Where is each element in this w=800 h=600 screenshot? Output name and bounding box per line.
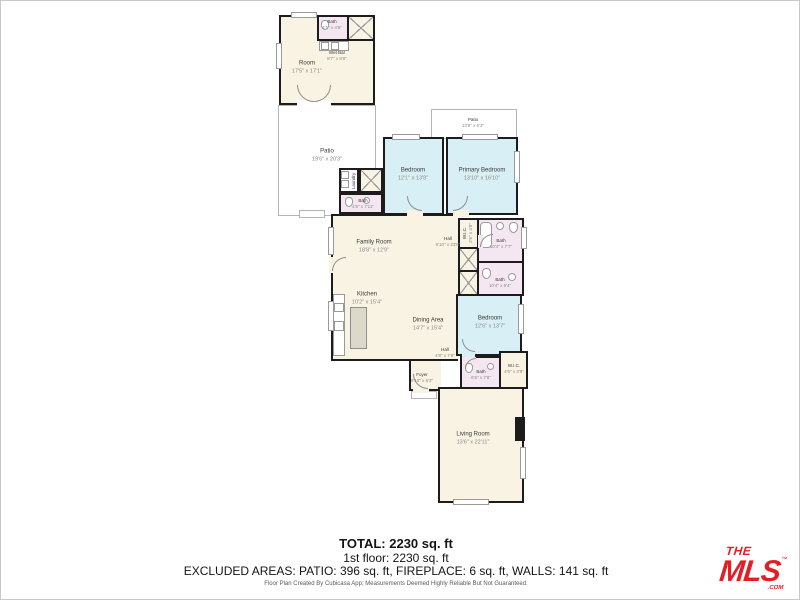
label-living-room: Living Room13'6" x 22'11" — [456, 432, 489, 447]
label-kitchen: Kitchen10'2" x 15'4" — [352, 292, 382, 307]
label-bath-lower: Bath10'4" x 6'4" — [489, 277, 511, 289]
living-bottom-window — [453, 499, 489, 505]
kitchen-island — [350, 307, 367, 349]
bedroom-right-window — [518, 304, 524, 334]
label-family-room: Family Room18'8" x 12'9" — [356, 240, 391, 255]
label-hall-small: Hall4'8" x 7'8" — [435, 347, 455, 359]
label-primary-bedroom: Primary Bedroom13'10" x 16'10" — [459, 168, 506, 183]
washer — [341, 171, 349, 179]
living-right-window — [520, 447, 526, 479]
label-laundry: Laundry — [351, 173, 357, 189]
kitchen-sink — [334, 303, 344, 312]
bedroom-left-window — [392, 134, 420, 140]
label-adu-bath: Bath4'1" x 4'6" — [322, 19, 342, 31]
hall-closet-x2 — [458, 247, 479, 272]
label-wic-bottom: W.I.C.4'5" x 3'9" — [504, 363, 524, 375]
label-adu-room: Room17'5" x 17'1" — [292, 61, 322, 76]
hall-closet-x3 — [458, 270, 479, 296]
label-dining: Dining Area14'7" x 15'4" — [412, 318, 443, 333]
logo-trademark: ™ — [781, 557, 787, 563]
dryer — [341, 180, 349, 188]
primary-door-gap — [453, 210, 469, 217]
logo-mls-text: MLS™ — [718, 557, 786, 587]
bedroom-left-door-gap — [407, 210, 423, 217]
hall-closet-x — [359, 168, 383, 193]
wet-bar-sink — [331, 42, 339, 50]
bath-upper-sink — [496, 222, 504, 230]
wet-bar-appliance — [321, 42, 329, 50]
label-patio-main: Patio19'6" x 20'3" — [312, 149, 342, 164]
label-patio-top: Patio13'8" x 5'3" — [462, 117, 484, 129]
label-hall-bath: Bath4'5" x 7'11" — [352, 198, 374, 210]
label-wet-bar: Wet Bar8'7" x 9'8" — [327, 50, 347, 62]
total-area-text: TOTAL: 2230 sq. ft — [1, 536, 791, 551]
label-bath-upper: Bath10'4" x 7'7" — [490, 238, 512, 250]
adu-closet-x — [347, 15, 375, 41]
bath-upper-window — [521, 227, 527, 249]
floor-plan-page: Room17'5" x 17'1" Bath4'1" x 4'6" Wet Ba… — [0, 0, 800, 600]
primary-top-window — [462, 134, 498, 140]
kitchen-stove — [334, 321, 344, 331]
excluded-areas-text: EXCLUDED AREAS: PATIO: 396 sq. ft, FIREP… — [1, 564, 791, 578]
label-bedroom-left: Bedroom12'1" x 13'8" — [398, 168, 428, 183]
adu-top-window — [291, 12, 317, 18]
fireplace — [515, 417, 525, 441]
adu-left-window — [276, 43, 282, 69]
label-wic-top: W.I.C.2'6" x 4'8" — [462, 223, 474, 243]
patio-step — [299, 210, 325, 218]
label-foyer: Foyer9'10" x 6'3" — [411, 372, 433, 384]
first-floor-area-text: 1st floor: 2230 sq. ft — [1, 551, 791, 565]
label-hall-main: Hall6'10" x 23'8" — [436, 236, 461, 248]
family-left-window — [328, 227, 334, 255]
bath-upper-toilet — [509, 222, 518, 233]
label-bedroom-right: Bedroom12'6" x 13'7" — [475, 316, 505, 331]
primary-right-window — [514, 151, 520, 183]
label-bath-small: Bath6'5" x 7'8" — [471, 369, 491, 381]
kitchen-left-window — [328, 301, 334, 331]
disclaimer-text: Floor Plan Created By Cubicasa App; Meas… — [1, 581, 791, 587]
the-mls-logo: THE MLS™ .COM — [717, 545, 787, 591]
